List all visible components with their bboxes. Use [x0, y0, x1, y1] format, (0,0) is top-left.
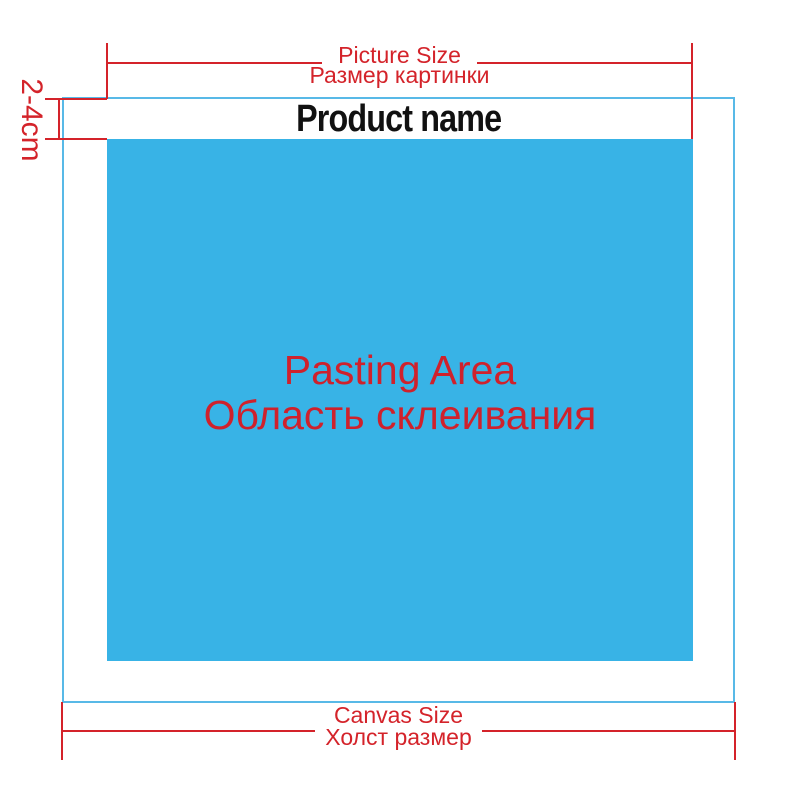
canvas-size-text-ru: Холст размер	[315, 726, 481, 748]
picture-size-label-ru: Размер картинки	[107, 65, 692, 85]
margin-label: 2-4cm	[14, 65, 48, 175]
canvas-size-label-ru: Холст размер	[62, 726, 735, 748]
canvas-size-label-en: Canvas Size	[62, 704, 735, 726]
pasting-area-caption: Pasting Area Область склеивания	[107, 348, 693, 438]
margin-dimension-line	[58, 99, 60, 139]
pasting-area-caption-ru: Область склеивания	[107, 393, 693, 438]
size-diagram: Product name Pasting Area Область склеив…	[0, 0, 800, 800]
margin-tick-top	[45, 98, 107, 100]
product-name-label: Product name	[62, 99, 735, 139]
product-name-text: Product name	[296, 99, 501, 139]
margin-tick-bottom	[45, 138, 107, 140]
pasting-area-caption-en: Pasting Area	[107, 348, 693, 393]
picture-size-text-ru: Размер картинки	[309, 62, 489, 88]
